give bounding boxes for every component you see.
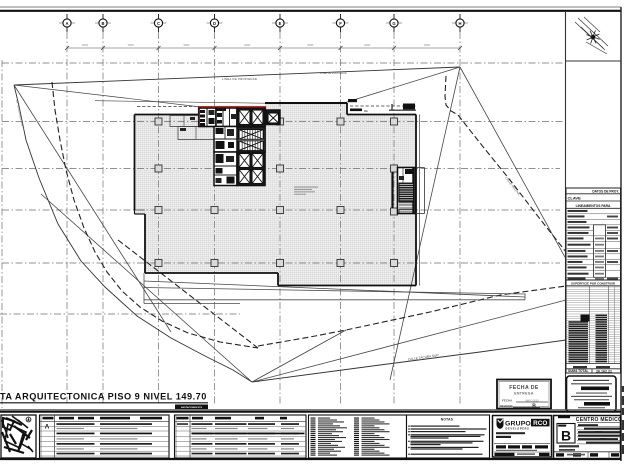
svg-text:D E V E L O P E R S: D E V E L O P E R S [506, 427, 530, 430]
svg-text:RCO: RCO [533, 420, 547, 427]
svg-text:B: B [561, 427, 571, 443]
svg-text:A: A [45, 424, 50, 431]
svg-text:FECHA: FECHA [502, 399, 513, 403]
svg-text:D: D [213, 21, 216, 26]
svg-text:ENTREGA: ENTREGA [514, 392, 534, 396]
svg-text:REVISION: REVISION [500, 404, 513, 408]
svg-text:CENTRO MEDICO: CENTRO MEDICO [576, 417, 622, 423]
svg-text:H: H [458, 21, 461, 26]
svg-text:A: A [65, 21, 68, 26]
svg-text:ANOTACIONES NTS: ANOTACIONES NTS [181, 406, 203, 409]
svg-text:FECHA DE: FECHA DE [509, 385, 539, 391]
svg-text:ME: ME [364, 109, 368, 113]
svg-text:LINEA DE PROPIEDAD: LINEA DE PROPIEDAD [222, 77, 257, 81]
svg-text:TA ARQUITECTONICA PISO 9 NIVEL: TA ARQUITECTONICA PISO 9 NIVEL 149.70 [0, 392, 207, 402]
svg-text:CLAVE: CLAVE [568, 196, 582, 201]
svg-text:LINEA DE PROPIEDAD: LINEA DE PROPIEDAD [320, 72, 347, 75]
svg-text:MAYO 2019: MAYO 2019 [526, 400, 540, 403]
svg-text:DATOS DE PROY.: DATOS DE PROY. [592, 190, 619, 194]
svg-text:NOTAS: NOTAS [441, 418, 453, 422]
svg-text:26,162.21: 26,162.21 [596, 369, 612, 373]
svg-text:SUPERFICIE POR CONSTRUIR: SUPERFICIE POR CONSTRUIR [571, 281, 616, 285]
svg-text:B: B [532, 404, 536, 410]
svg-text:LINEAMIENTOS PARA: LINEAMIENTOS PARA [576, 204, 611, 208]
svg-text:F: F [339, 21, 342, 26]
svg-text:B: B [101, 21, 104, 26]
svg-text:C: C [157, 21, 160, 26]
svg-text:SUMA TOTAL: SUMA TOTAL [568, 369, 589, 373]
svg-text:E: E [279, 21, 282, 26]
svg-text:G: G [392, 21, 395, 26]
